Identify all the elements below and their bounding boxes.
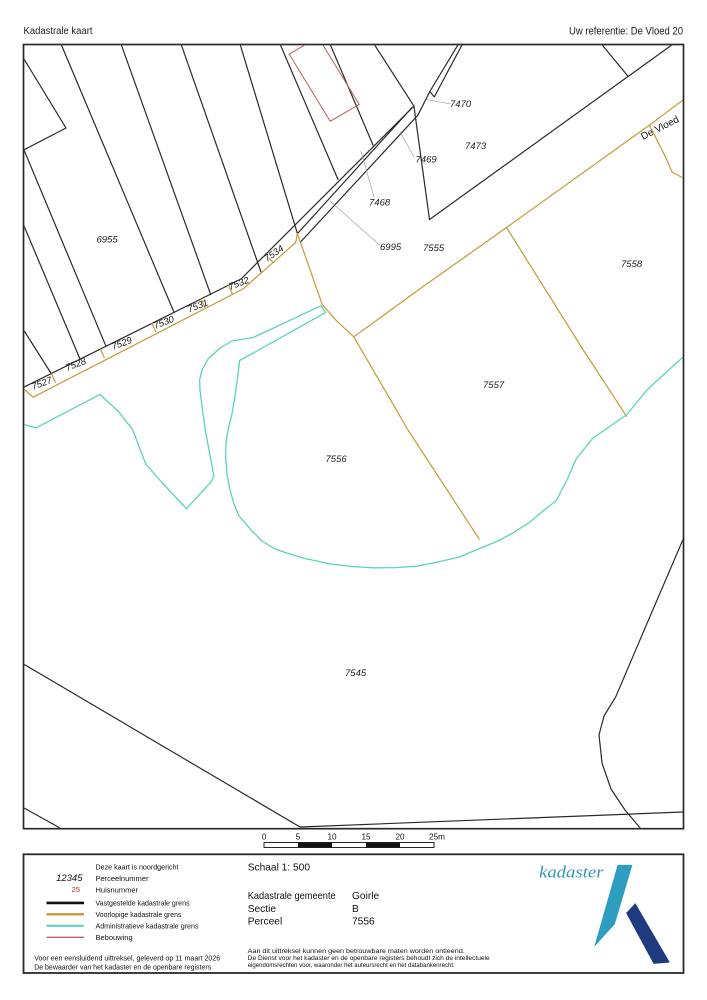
- svg-text:7470: 7470: [450, 99, 472, 110]
- svg-text:De bewaarder van het kadaster: De bewaarder van het kadaster en de open…: [34, 963, 211, 972]
- svg-text:Sectie: Sectie: [248, 904, 277, 915]
- svg-text:7556: 7556: [326, 454, 348, 465]
- svg-text:7468: 7468: [369, 198, 391, 209]
- svg-text:Huisnummer: Huisnummer: [96, 885, 139, 894]
- svg-text:5: 5: [296, 833, 301, 842]
- svg-text:kadaster: kadaster: [539, 863, 604, 882]
- svg-text:7473: 7473: [465, 141, 487, 152]
- svg-text:Deze kaart is noordgericht: Deze kaart is noordgericht: [96, 863, 180, 872]
- svg-text:10: 10: [327, 833, 337, 842]
- svg-text:Vastgestelde kadastrale grens: Vastgestelde kadastrale grens: [96, 899, 190, 908]
- svg-text:Perceel: Perceel: [248, 917, 283, 928]
- svg-text:eigendomsrechten voor, waarond: eigendomsrechten voor, waaronder het aut…: [248, 962, 455, 969]
- svg-text:0: 0: [262, 833, 267, 842]
- svg-text:7545: 7545: [345, 668, 367, 679]
- svg-text:7469: 7469: [416, 155, 438, 166]
- svg-text:7527: 7527: [30, 375, 54, 393]
- svg-text:Perceelnummer: Perceelnummer: [96, 874, 149, 883]
- svg-text:7529: 7529: [110, 335, 134, 353]
- svg-text:15: 15: [361, 833, 371, 842]
- svg-text:Kadastrale gemeente: Kadastrale gemeente: [248, 891, 336, 902]
- svg-text:25: 25: [72, 885, 80, 894]
- svg-text:Bebouwing: Bebouwing: [96, 933, 133, 942]
- svg-text:20: 20: [395, 833, 405, 842]
- svg-text:Uw referentie: De Vloed 20: Uw referentie: De Vloed 20: [569, 26, 683, 38]
- svg-text:6955: 6955: [97, 235, 119, 246]
- svg-text:Voor een eensluidend uittrekse: Voor een eensluidend uittreksel, gelever…: [34, 953, 220, 962]
- svg-text:7555: 7555: [423, 243, 445, 254]
- svg-text:6995: 6995: [380, 242, 402, 253]
- svg-text:Schaal 1: 500: Schaal 1: 500: [248, 862, 311, 873]
- svg-text:7557: 7557: [483, 380, 505, 391]
- svg-text:Goirle: Goirle: [352, 891, 380, 902]
- svg-text:Kadastrale kaart: Kadastrale kaart: [24, 26, 93, 37]
- svg-text:7556: 7556: [352, 917, 375, 928]
- svg-text:25m: 25m: [429, 833, 445, 842]
- svg-text:7532: 7532: [227, 275, 251, 293]
- svg-text:7558: 7558: [621, 259, 643, 270]
- svg-text:Administratieve kadastrale gre: Administratieve kadastrale grens: [96, 922, 199, 931]
- svg-text:12345: 12345: [56, 873, 83, 884]
- svg-text:B: B: [352, 904, 359, 915]
- svg-text:Voorlopige kadastrale grens: Voorlopige kadastrale grens: [96, 910, 182, 919]
